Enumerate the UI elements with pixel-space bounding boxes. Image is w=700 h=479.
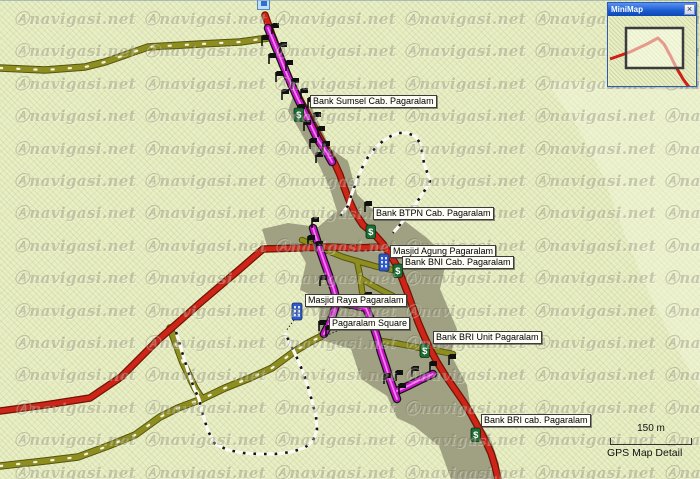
- poi-label-masjid-raya[interactable]: Masjid Raya Pagaralam: [305, 294, 407, 307]
- close-icon[interactable]: ×: [684, 4, 695, 15]
- map-symbol-partial-icon: [257, 0, 270, 10]
- poi-label-bank-btpn[interactable]: Bank BTPN Cab. Pagaralam: [373, 207, 494, 220]
- scale-distance: 150 m: [610, 423, 692, 434]
- poi-label-bank-sumsel[interactable]: Bank Sumsel Cab. Pagaralam: [310, 95, 437, 108]
- minimap-map[interactable]: [609, 16, 695, 86]
- map-symbol-inner: [261, 1, 267, 6]
- minimap-viewport[interactable]: [626, 28, 683, 68]
- scale-bar: [610, 438, 692, 445]
- map-detail-status: GPS Map Detail: [607, 447, 682, 459]
- map-view[interactable]: $$$$$ Ⓐnavigasi.netⒶnavigasi.netⒶnavigas…: [0, 0, 700, 479]
- minimap-title: MiniMap: [608, 3, 696, 16]
- minimap-panel[interactable]: MiniMap ×: [607, 2, 697, 87]
- poi-label-layer: Bank Sumsel Cab. PagaralamBank BTPN Cab.…: [0, 0, 700, 479]
- poi-label-bank-bni[interactable]: Bank BNI Cab. Pagaralam: [402, 256, 514, 269]
- window-edge: [0, 0, 700, 1]
- poi-label-pagaralam-square[interactable]: Pagaralam Square: [329, 317, 410, 330]
- poi-label-bank-bri-cab[interactable]: Bank BRI cab. Pagaralam: [481, 414, 591, 427]
- poi-label-bank-bri-unit[interactable]: Bank BRI Unit Pagaralam: [433, 331, 542, 344]
- minimap-canvas: [609, 16, 695, 86]
